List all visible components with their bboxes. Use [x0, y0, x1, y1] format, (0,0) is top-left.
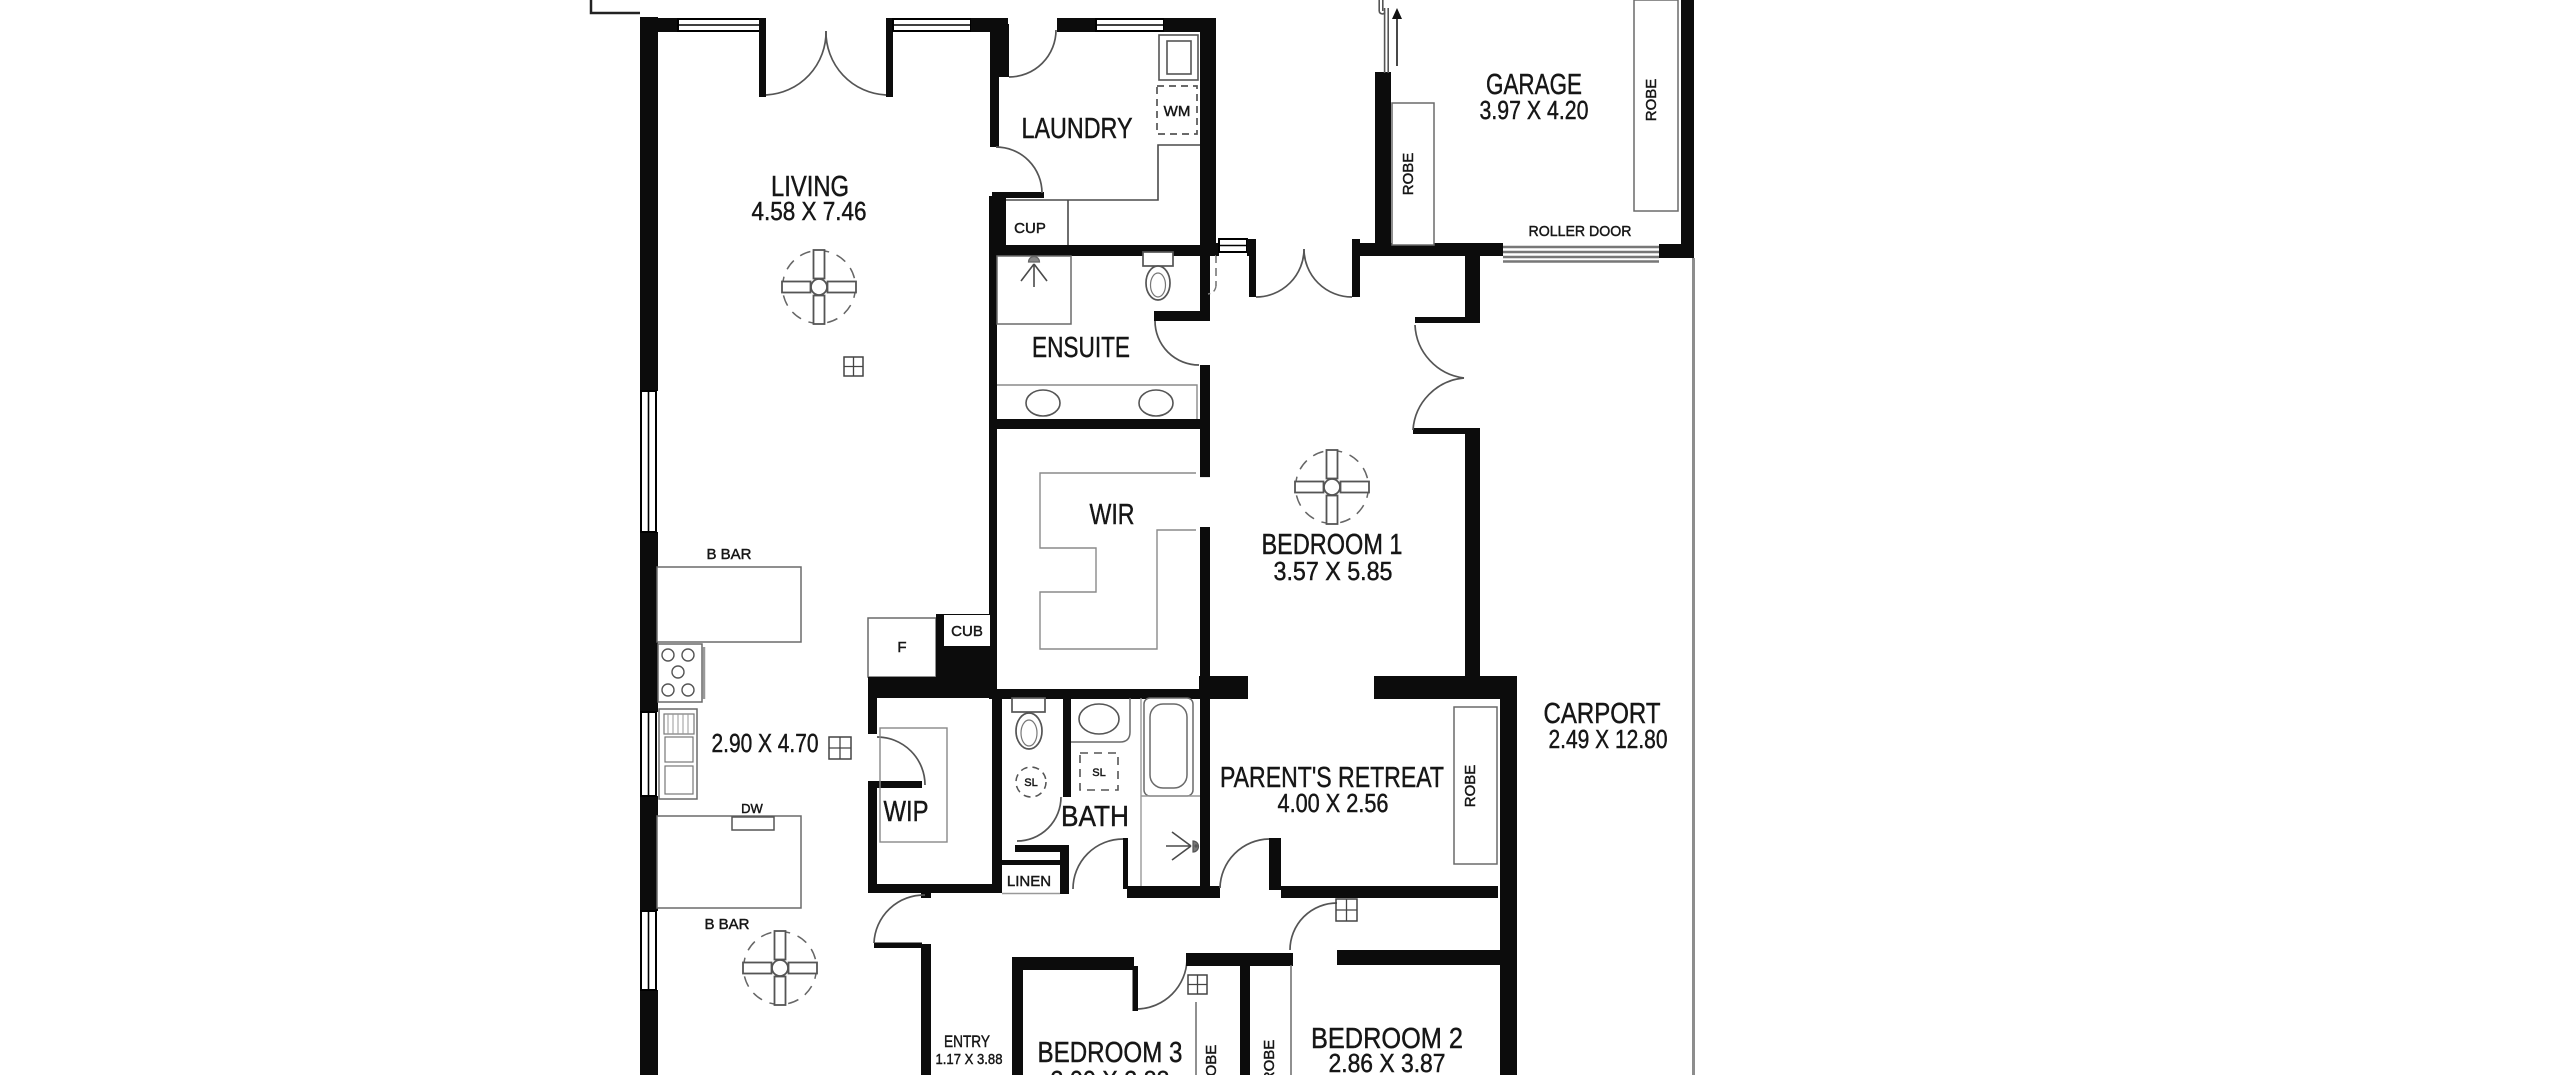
svg-text:LAUNDRY: LAUNDRY: [1022, 113, 1133, 145]
svg-text:B BAR: B BAR: [706, 546, 751, 563]
svg-text:CUP: CUP: [1014, 220, 1046, 237]
svg-text:2.90 X 4.70: 2.90 X 4.70: [712, 728, 819, 758]
svg-text:ROLLER DOOR: ROLLER DOOR: [1529, 223, 1632, 240]
svg-text:4.58 X 7.46: 4.58 X 7.46: [752, 196, 867, 226]
svg-text:DW: DW: [741, 801, 763, 816]
svg-text:BATH: BATH: [1061, 801, 1129, 833]
svg-text:1.17 X 3.88: 1.17 X 3.88: [936, 1051, 1003, 1068]
svg-text:ENSUITE: ENSUITE: [1032, 332, 1130, 364]
svg-text:ROBE: ROBE: [1203, 1045, 1220, 1075]
svg-text:CUB: CUB: [951, 623, 983, 640]
svg-text:SL: SL: [1092, 767, 1105, 779]
svg-text:2.86 X 3.87: 2.86 X 3.87: [1329, 1048, 1446, 1075]
svg-text:ROBE: ROBE: [1261, 1040, 1278, 1075]
svg-text:3.57 X 5.85: 3.57 X 5.85: [1274, 556, 1393, 586]
svg-text:WM: WM: [1164, 103, 1191, 120]
svg-text:SL: SL: [1024, 777, 1037, 789]
svg-text:ROBE: ROBE: [1643, 79, 1660, 122]
svg-text:F: F: [897, 639, 906, 656]
svg-text:4.00 X 2.56: 4.00 X 2.56: [1278, 788, 1389, 818]
svg-text:B BAR: B BAR: [704, 916, 749, 933]
svg-text:2.49 X 12.80: 2.49 X 12.80: [1549, 724, 1668, 754]
svg-text:WIR: WIR: [1090, 499, 1135, 531]
svg-text:WIP: WIP: [884, 796, 929, 828]
svg-text:3.97 X 4.20: 3.97 X 4.20: [1480, 95, 1589, 125]
svg-text:LINEN: LINEN: [1007, 873, 1051, 890]
svg-text:ROBE: ROBE: [1400, 153, 1417, 196]
svg-text:ENTRY: ENTRY: [944, 1032, 990, 1051]
svg-text:ROBE: ROBE: [1462, 765, 1479, 808]
svg-text:3.00 X 3.88: 3.00 X 3.88: [1051, 1065, 1170, 1075]
